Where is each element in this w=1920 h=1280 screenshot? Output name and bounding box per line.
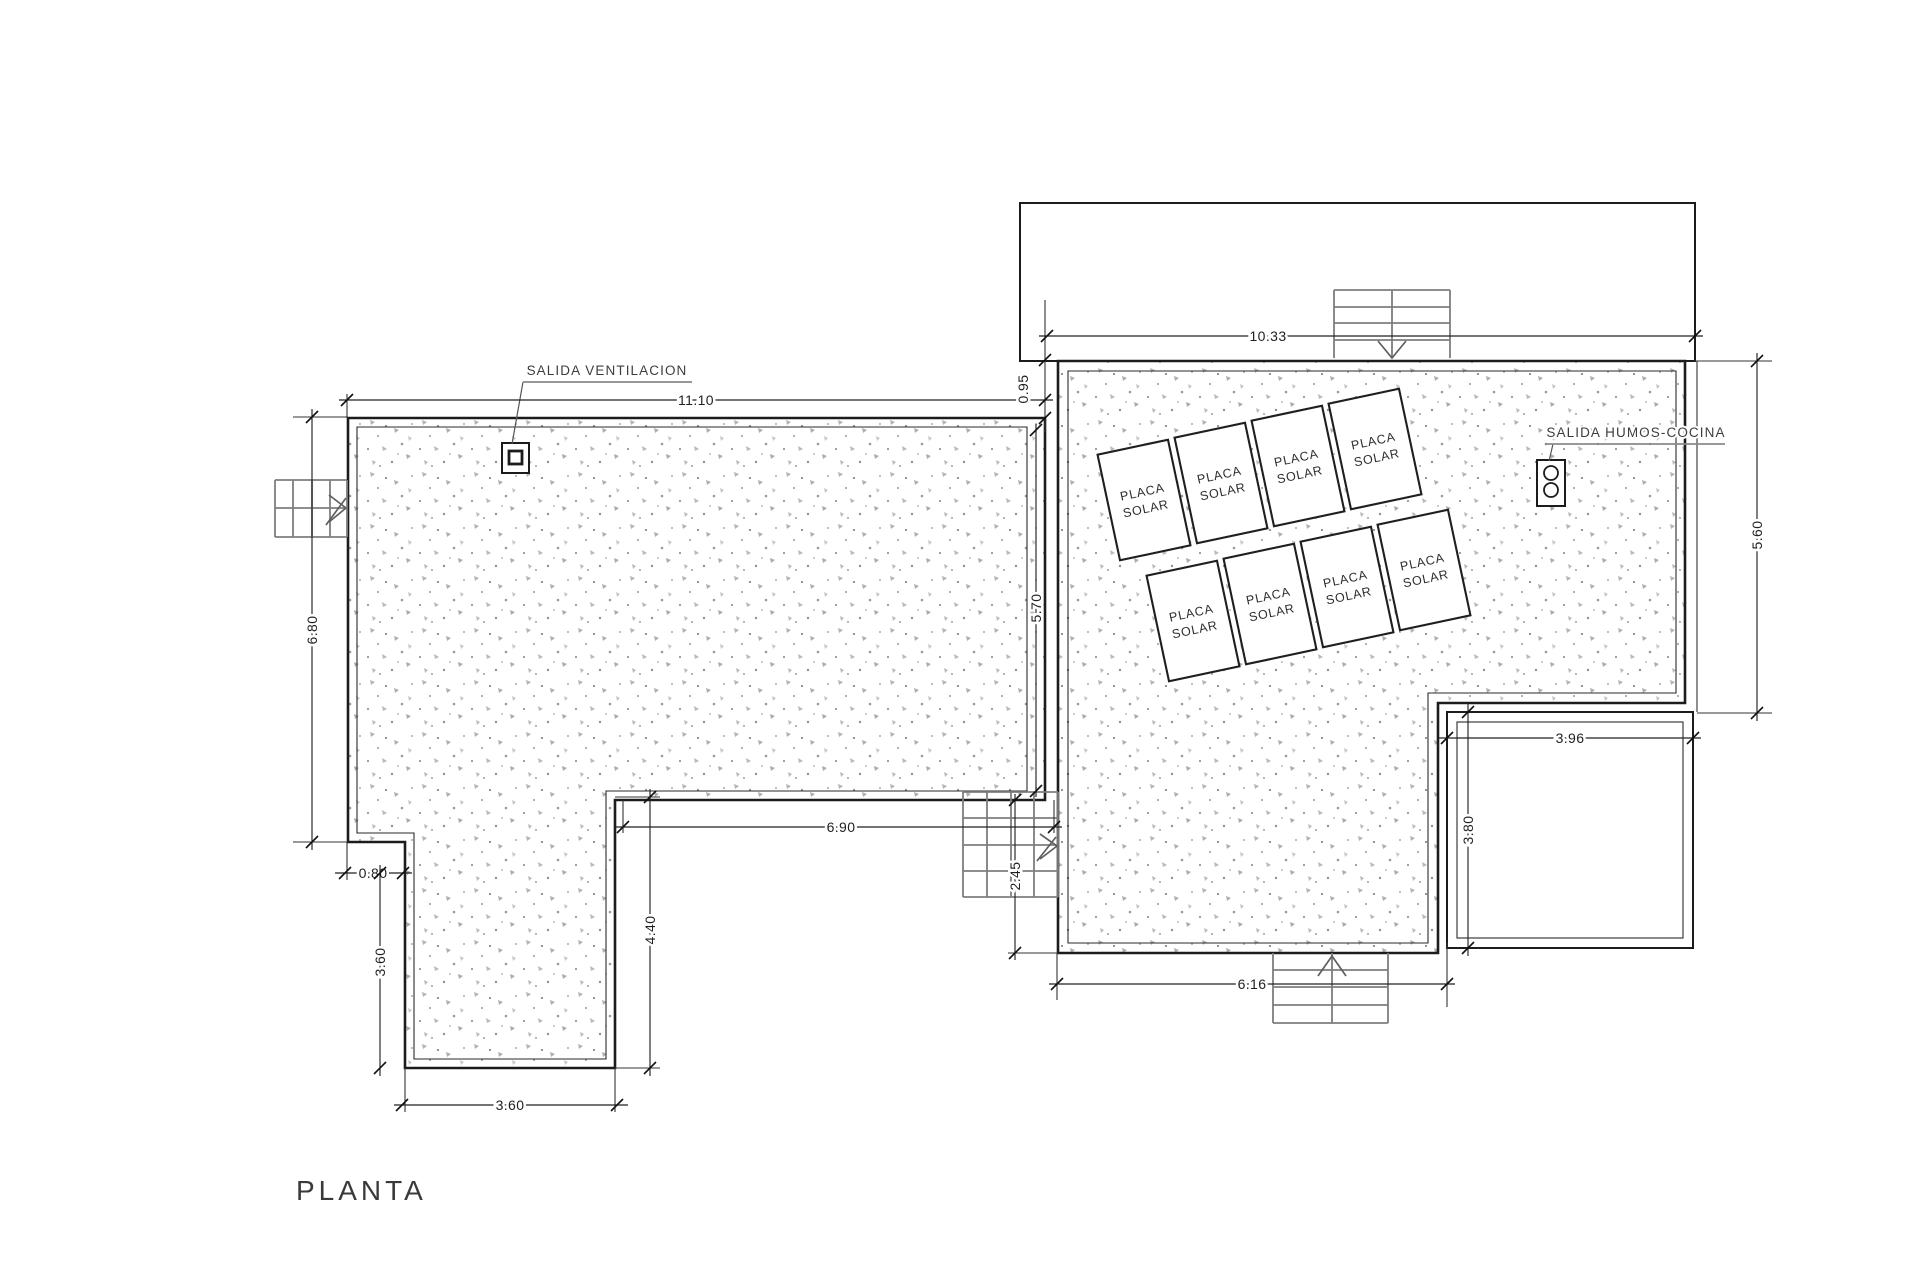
svg-text:5.60: 5.60 (1749, 521, 1765, 550)
svg-text:6.16: 6.16 (1238, 976, 1267, 992)
dim-left-roof-width: 11.10 (339, 392, 1053, 408)
dim-leg-width: 3.60 (394, 1097, 628, 1113)
dim-left-roof-height: 6.80 (304, 409, 320, 850)
stairs-left (275, 480, 347, 537)
svg-text:11.10: 11.10 (678, 392, 714, 408)
svg-text:10.33: 10.33 (1249, 328, 1286, 344)
svg-text:4.40: 4.40 (642, 916, 658, 945)
floor-plan-page: PLACASOLAR PLACASOLAR PLACASOLAR PLACASO… (0, 0, 1920, 1280)
svg-text:2.45: 2.45 (1007, 862, 1023, 891)
svg-text:0.95: 0.95 (1015, 375, 1031, 404)
svg-text:0.80: 0.80 (359, 865, 388, 881)
annex (1447, 712, 1693, 948)
annex-outline (1447, 712, 1693, 948)
svg-text:6.90: 6.90 (827, 819, 856, 835)
svg-text:3.60: 3.60 (372, 948, 388, 977)
svg-text:3.60: 3.60 (496, 1097, 525, 1113)
vent-label: SALIDA VENTILACION (527, 363, 688, 378)
upper-block-outline (1020, 203, 1695, 361)
roof-plan-drawing: PLACASOLAR PLACASOLAR PLACASOLAR PLACASO… (0, 0, 1920, 1280)
stairs-bottom (1273, 953, 1388, 1023)
page-title: PLANTA (296, 1175, 427, 1206)
dim-leg-height: 3.60 (372, 865, 388, 1076)
dim-stair-recess-depth: 2.45 (1007, 794, 1023, 960)
left-roof-outline (348, 418, 1045, 1068)
dim-leg-right-height: 4.40 (642, 789, 658, 1076)
kitchen-label: SALIDA HUMOS-COCINA (1546, 425, 1725, 440)
dim-recess-width: 6.90 (615, 819, 1062, 835)
svg-text:5.70: 5.70 (1028, 594, 1044, 623)
svg-text:3.96: 3.96 (1556, 730, 1585, 746)
dim-right-roof-height: 5.60 (1749, 353, 1765, 721)
svg-text:3.80: 3.80 (1460, 816, 1476, 845)
dim-roof-level-offset: 0.95 (1015, 354, 1051, 424)
left-roof (348, 418, 1045, 1068)
svg-text:6.80: 6.80 (304, 616, 320, 645)
dim-right-roof-bottom-width: 6.16 (1049, 976, 1455, 992)
